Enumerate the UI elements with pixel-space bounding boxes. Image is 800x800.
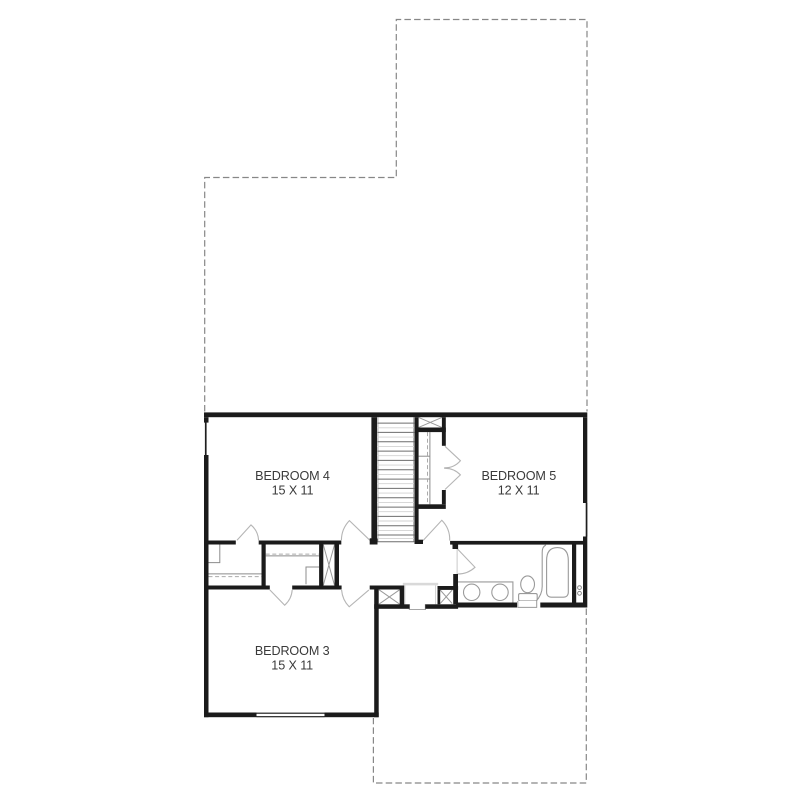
svg-text:12 X 11: 12 X 11: [498, 483, 540, 497]
svg-text:BEDROOM 4: BEDROOM 4: [255, 469, 330, 483]
svg-text:BEDROOM 5: BEDROOM 5: [481, 469, 556, 483]
svg-text:15 X 11: 15 X 11: [271, 659, 313, 673]
svg-text:BEDROOM 3: BEDROOM 3: [255, 644, 330, 658]
svg-text:15 X 11: 15 X 11: [272, 484, 314, 498]
